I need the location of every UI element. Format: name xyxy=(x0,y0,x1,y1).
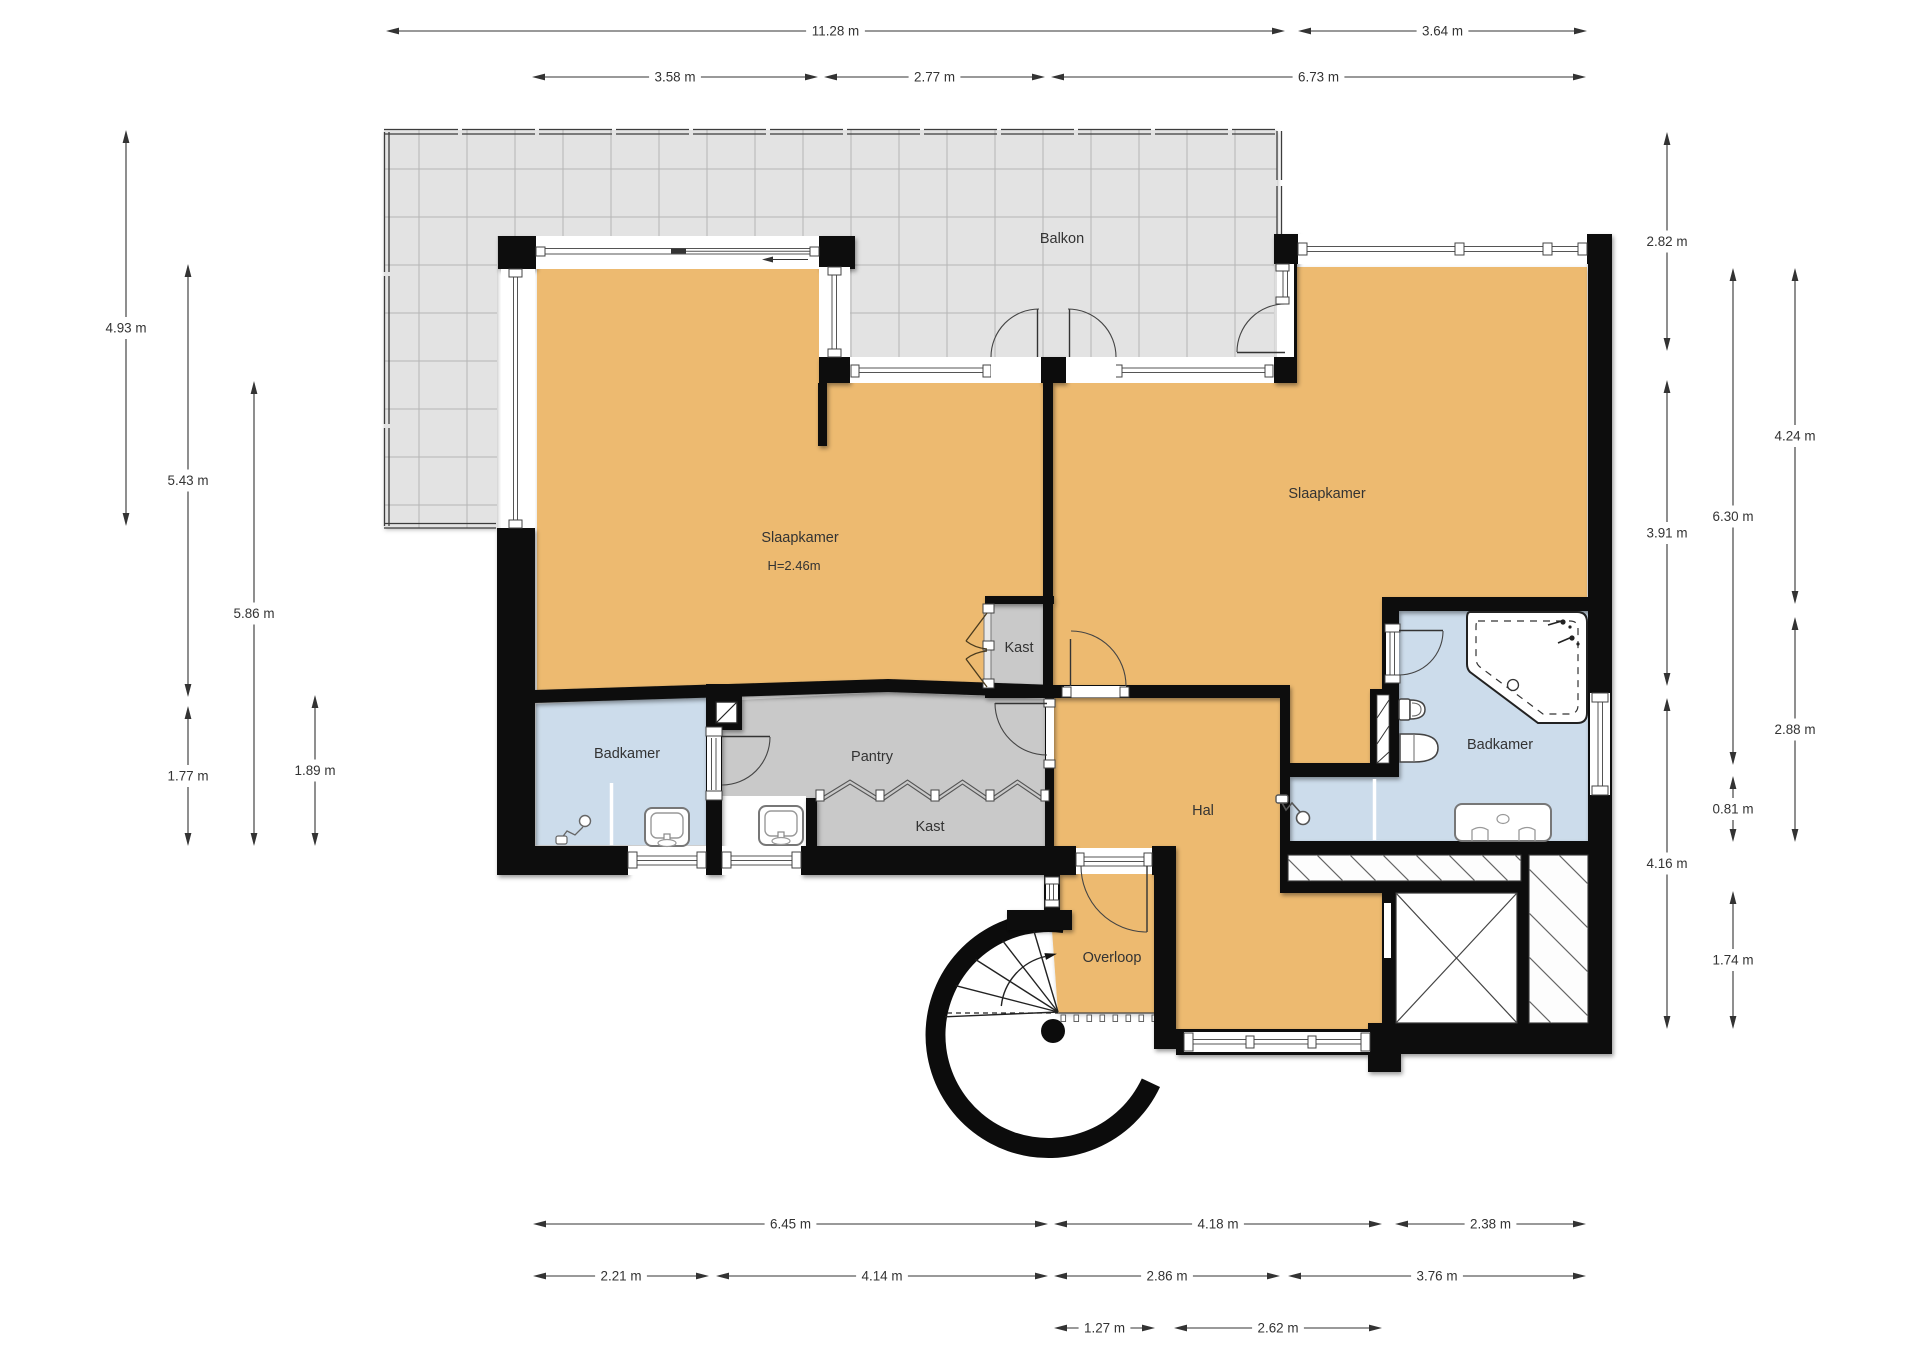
svg-text:6.45 m: 6.45 m xyxy=(770,1217,811,1232)
svg-text:4.16 m: 4.16 m xyxy=(1647,856,1688,871)
svg-text:2.77 m: 2.77 m xyxy=(914,70,955,85)
svg-text:11.28 m: 11.28 m xyxy=(812,24,859,39)
svg-text:4.24 m: 4.24 m xyxy=(1775,429,1816,444)
svg-text:Balkon: Balkon xyxy=(1040,231,1084,247)
svg-text:3.58 m: 3.58 m xyxy=(655,70,696,85)
svg-text:2.62 m: 2.62 m xyxy=(1258,1321,1299,1336)
svg-text:3.91 m: 3.91 m xyxy=(1647,526,1688,541)
svg-text:5.43 m: 5.43 m xyxy=(168,473,209,488)
svg-text:H=2.46m: H=2.46m xyxy=(767,558,820,573)
svg-text:1.27 m: 1.27 m xyxy=(1084,1321,1125,1336)
svg-text:Kast: Kast xyxy=(1004,640,1033,656)
svg-text:1.89 m: 1.89 m xyxy=(295,763,336,778)
svg-text:Overloop: Overloop xyxy=(1083,950,1142,966)
svg-text:1.77 m: 1.77 m xyxy=(168,769,209,784)
svg-text:Slaapkamer: Slaapkamer xyxy=(761,530,839,546)
svg-text:6.30 m: 6.30 m xyxy=(1713,509,1754,524)
svg-text:2.82 m: 2.82 m xyxy=(1647,234,1688,249)
svg-text:2.38 m: 2.38 m xyxy=(1470,1217,1511,1232)
svg-text:2.21 m: 2.21 m xyxy=(601,1269,642,1284)
svg-text:Badkamer: Badkamer xyxy=(1467,737,1533,753)
svg-text:4.18 m: 4.18 m xyxy=(1198,1217,1239,1232)
svg-text:2.86 m: 2.86 m xyxy=(1147,1269,1188,1284)
svg-text:2.88 m: 2.88 m xyxy=(1775,722,1816,737)
svg-text:1.74 m: 1.74 m xyxy=(1713,953,1754,968)
svg-text:4.14 m: 4.14 m xyxy=(862,1269,903,1284)
svg-text:Pantry: Pantry xyxy=(851,749,894,765)
svg-text:Badkamer: Badkamer xyxy=(594,746,660,762)
svg-text:6.73 m: 6.73 m xyxy=(1298,70,1339,85)
svg-text:3.76 m: 3.76 m xyxy=(1417,1269,1458,1284)
svg-text:Hal: Hal xyxy=(1192,803,1214,819)
svg-text:5.86 m: 5.86 m xyxy=(234,606,275,621)
svg-text:4.93 m: 4.93 m xyxy=(106,321,147,336)
svg-text:0.81 m: 0.81 m xyxy=(1713,802,1754,817)
svg-text:3.64 m: 3.64 m xyxy=(1422,24,1463,39)
svg-text:Kast: Kast xyxy=(915,819,944,835)
svg-text:Slaapkamer: Slaapkamer xyxy=(1288,486,1366,502)
